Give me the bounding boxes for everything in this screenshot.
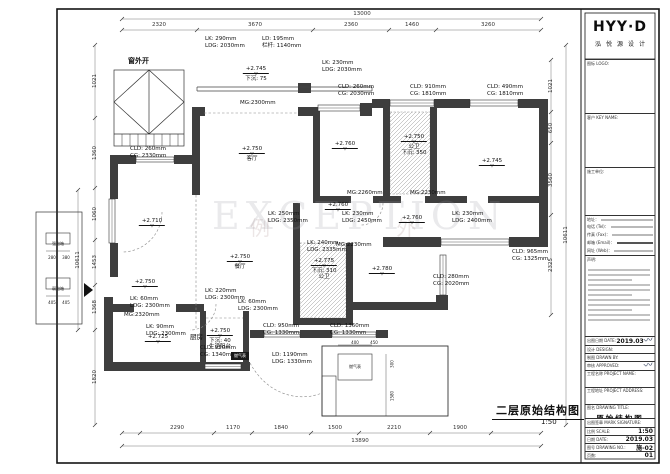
level-marker: +2.750▽	[132, 279, 158, 289]
dim-label: 3670	[248, 22, 262, 28]
tb-field-row: 设计 DESIGN:	[585, 345, 655, 353]
label: LDG: 2450mm	[342, 218, 382, 225]
label: CLD: 910mm	[410, 84, 446, 91]
level-marker: +2.750▽下沉: 40生活阳台	[207, 328, 233, 351]
dim-label: 1900	[453, 425, 467, 431]
leader-label: LK: 230mmLDG: 2400mm	[452, 211, 492, 225]
dim-top-total: 13000	[353, 11, 371, 17]
label: LDG: 2030mm	[322, 67, 362, 74]
tb-field-label: 制图 DRAWN BY:	[587, 355, 619, 361]
leader-label: LK: 60mmLDG: 2300mm	[238, 299, 278, 313]
leader-label: LK: 230mmLDG: 2450mm	[342, 211, 382, 225]
dim-label: 2210	[387, 425, 401, 431]
tb-field-label: 日期 DATE:	[587, 437, 608, 443]
label: LK: 290mm	[205, 36, 245, 43]
detail-dim-label: 300	[390, 360, 395, 368]
label: LK: 230mm	[342, 211, 382, 218]
tb-notes-line	[588, 309, 632, 311]
leader-label: CLD: 280mmCG: 2020mm	[433, 274, 469, 288]
tb-field-row: 审核 APPROVED:〰	[585, 361, 655, 370]
dim-label: 1170	[226, 425, 240, 431]
dim-label: 1021	[92, 74, 98, 88]
mg-height-label: MG:2320mm	[124, 312, 160, 318]
level-marker: +2.775▽下沉: 310公卫	[311, 258, 337, 281]
dim-label: 10611	[75, 251, 81, 269]
dim-label: 1500	[328, 425, 342, 431]
tb-contact-label: 地址：	[587, 217, 599, 223]
label: 栏杆: 1140mm	[262, 43, 301, 50]
dim-label: 2290	[170, 425, 184, 431]
detail-dim-label: 强电箱	[52, 241, 64, 247]
leader-label: CLD: 490mmCG: 1810mm	[487, 84, 523, 98]
label: LDG: 2300mm	[238, 306, 278, 313]
company-logo: HYY·D	[585, 19, 655, 35]
label: LDG: 2400mm	[452, 218, 492, 225]
label: LK: 60mm	[130, 296, 170, 303]
label: LK: 60mm	[238, 299, 278, 306]
detail-dim-label: 405	[62, 300, 70, 305]
tb-field-value: 2019.03	[616, 338, 643, 345]
tb-field-row: 比例 SCALE:1:50	[585, 427, 655, 435]
label: CLD: 950mm	[263, 323, 299, 330]
detail-dim-label: 450	[370, 340, 378, 345]
page: { "watermark": {"text": "EXCEPTION", "cn…	[0, 0, 670, 474]
leader-label: LD: 1190mmLDG: 1330mm	[272, 352, 312, 366]
tb-field-row: 出图日期 DATE:2019.03〰	[585, 336, 655, 345]
label: CG: 1330mm	[330, 330, 369, 337]
signature-stamp: 〰	[644, 362, 654, 369]
tb-contact-row: 传真 (Fax)：	[585, 231, 655, 239]
dim-label: 2320	[152, 22, 166, 28]
tb-field-value: 施-02	[636, 443, 653, 451]
level-marker: +2.745▽	[479, 158, 505, 168]
signature-stamp: 〰	[644, 337, 654, 344]
leader-label: CLD: 910mmCG: 1810mm	[410, 84, 446, 98]
label: CG: 1810mm	[410, 91, 446, 98]
tb-notes-line	[588, 274, 650, 276]
tb-notes-line	[588, 319, 650, 321]
tb-cell-label: 图标 LOGO:	[585, 60, 655, 68]
tb-notes-line	[588, 279, 632, 281]
tb-field-value: 1:50	[638, 428, 653, 435]
label: CLD: 490mm	[487, 84, 523, 91]
tb-field-label: 图号 DRAWING NO.:	[587, 445, 626, 451]
label: CLD: 965mm	[512, 249, 548, 256]
leader-label: CLD: 260mmCG: 2330mm	[130, 146, 166, 160]
tb-contact-row: 电话 (Tel)：	[585, 223, 655, 231]
label: CG: 1330mm	[263, 330, 299, 337]
leader-label: LK: 60mmLDG: 2300mm	[130, 296, 170, 310]
dim-label: 1360	[92, 146, 98, 160]
detail-dim-label: 405	[48, 300, 56, 305]
tb-contact-label: 电话 (Tel)：	[587, 224, 609, 230]
tb-notes-line	[588, 284, 650, 286]
tb-notes-header: 声明:	[585, 255, 655, 268]
tb-field-label: 比例 SCALE:	[587, 429, 610, 435]
label: LK: 250mm	[268, 211, 308, 218]
gas-meter-chip: 燃气表	[231, 352, 249, 360]
dim-label: 1840	[274, 425, 288, 431]
mg-height-label: MG:2300mm	[240, 100, 276, 106]
dim-label: 650	[548, 123, 554, 134]
dim-label: 1021	[548, 79, 554, 93]
dim-label: 1820	[92, 370, 98, 384]
tb-notes-line	[588, 269, 650, 271]
level-marker: +2.750▽餐厅	[227, 254, 253, 270]
leader-label: CLD: 1360mmCG: 1330mm	[330, 323, 369, 337]
level-marker: +2.760▽	[332, 141, 358, 151]
tb-contact-value-bar	[601, 219, 653, 221]
dim-label: 1453	[92, 255, 98, 269]
label: LD: 1190mm	[272, 352, 312, 359]
title-block: HYY·D 泓悦源设计 图标 LOGO:客户 KEY NAME:施工单位: 地址…	[585, 13, 655, 459]
dim-label: 3260	[481, 22, 495, 28]
detail-dim-label: 380	[62, 255, 70, 260]
tb-field-row: 图名 DRAWING TITLE:原始结构图	[585, 404, 655, 418]
room-label: 厨房	[190, 331, 203, 341]
level-marker: +2.745▽下沉: 75	[243, 66, 269, 82]
leader-label: LD: 195mm栏杆: 1140mm	[262, 36, 301, 50]
tb-field-value: 2019.03	[626, 436, 653, 443]
level-marker: +2.750▽公卫下沉: 350	[401, 134, 427, 157]
tb-contact-row: 地址：	[585, 215, 655, 223]
label: LDG: 2300mm	[130, 303, 170, 310]
tb-cell: 施工单位:	[585, 167, 655, 215]
label: CLD: 1360mm	[330, 323, 369, 330]
tb-field-row: 出图签章 MARK SIGNATURE:	[585, 418, 655, 427]
tb-contact-value-bar	[612, 234, 653, 236]
detail-dim-label: 400	[351, 340, 359, 345]
leader-label: LK: 230mmLDG: 2030mm	[322, 60, 362, 74]
level-marker: +2.760▽	[325, 202, 351, 212]
label: CG: 2020mm	[433, 281, 469, 288]
tb-field-row: 页数:01	[585, 451, 655, 459]
tb-contact-value-bar	[614, 250, 653, 252]
tb-cell: 图标 LOGO:	[585, 59, 655, 113]
label: CLD: 280mm	[433, 274, 469, 281]
tb-notes-line	[588, 289, 650, 291]
window-open-note: 窗外开	[128, 56, 149, 66]
tb-field-label: 图名 DRAWING TITLE:	[587, 405, 629, 411]
label: CG: 2030mm	[338, 91, 374, 98]
mg-height-label: MG:2230mm	[336, 242, 372, 248]
dim-label: 1060	[92, 207, 98, 221]
tb-notes-line	[588, 304, 650, 306]
tb-field-label: 出图签章 MARK SIGNATURE:	[587, 420, 641, 426]
tb-notes-line	[588, 299, 650, 301]
mg-height-label: MG:2230mm	[410, 190, 446, 196]
detail-dim-label: 280	[48, 255, 56, 260]
label: CG: 2330mm	[130, 153, 166, 160]
tb-notes-line	[588, 314, 650, 316]
leader-label: LK: 250mmLDG: 2350mm	[268, 211, 308, 225]
level-marker: +2.760▽	[399, 215, 425, 225]
dim-label: 10611	[563, 226, 569, 244]
level-marker: +2.725▽	[145, 334, 171, 344]
detail-dim-label: 1580	[390, 391, 395, 401]
leader-label: CLD: 950mmCG: 1330mm	[263, 323, 299, 337]
level-marker: +2.780▽	[369, 266, 395, 276]
tb-field-row: 日期 DATE:2019.03	[585, 435, 655, 443]
dim-label: 1368	[92, 300, 98, 314]
dim-label: 1460	[405, 22, 419, 28]
tb-field-value: 01	[645, 452, 653, 459]
company-logo-subtitle: 泓悦源设计	[585, 39, 655, 48]
label: LK: 90mm	[146, 324, 186, 331]
leader-label: CLD: 965mmCG: 1325mm	[512, 249, 548, 263]
tb-contact-row: 网址 (Web)：	[585, 247, 655, 255]
label: CLD: 260mm	[130, 146, 166, 153]
tb-field-label: 工程地址 PROJECT ADDRESS:	[587, 388, 643, 394]
label: LD: 195mm	[262, 36, 301, 43]
dim-label: 2325	[548, 258, 554, 272]
tb-contact-value-bar	[611, 226, 653, 228]
tb-field-row: 工程地址 PROJECT ADDRESS:	[585, 387, 655, 404]
label: CLD: 260mm	[338, 84, 374, 91]
detail-dim-label: 燃气表	[349, 364, 361, 370]
tb-cell: 客户 KEY NAME:	[585, 113, 655, 167]
level-marker: +2.710▽	[139, 218, 165, 228]
tb-notes-label: 声明:	[585, 256, 655, 264]
tb-notes-line	[588, 294, 632, 296]
tb-field-row: 图号 DRAWING NO.:施-02	[585, 443, 655, 451]
label: LDG: 1330mm	[272, 359, 312, 366]
tb-contact-label: 邮箱 (Email)：	[587, 240, 615, 246]
tb-contact-label: 网址 (Web)：	[587, 248, 612, 254]
tb-cell-label: 施工单位:	[585, 168, 655, 176]
detail-dim-label: 弱电箱	[52, 286, 64, 292]
label: LK: 230mm	[452, 211, 492, 218]
level-marker: +2.750▽客厅	[239, 146, 265, 162]
tb-contact-value-bar	[617, 242, 654, 244]
tb-field-row: 工程名称 PROJECT NAME:	[585, 370, 655, 387]
label: CG: 1810mm	[487, 91, 523, 98]
tb-field-label: 设计 DESIGN:	[587, 347, 613, 353]
dim-label: 2360	[344, 22, 358, 28]
tb-cell-label: 客户 KEY NAME:	[585, 114, 655, 122]
mg-height-label: MG:2260mm	[347, 190, 383, 196]
dim-bottom-total: 13890	[351, 438, 369, 444]
tb-field-label: 审核 APPROVED:	[587, 363, 619, 369]
leader-label: LK: 290mmLDG: 2030mm	[205, 36, 245, 50]
label: LDG: 2030mm	[205, 43, 245, 50]
plan-scale: 1:50	[541, 418, 557, 426]
label: LK: 230mm	[322, 60, 362, 67]
dim-label: 3560	[548, 173, 554, 187]
label: LDG: 2350mm	[268, 218, 308, 225]
label: LK: 220mm	[205, 288, 245, 295]
leader-label: CLD: 260mmCG: 2030mm	[338, 84, 374, 98]
plan-title: 二层原始结构图	[492, 402, 584, 420]
label: CG: 1325mm	[512, 256, 548, 263]
tb-field-label: 页数:	[587, 453, 596, 459]
tb-field-label: 出图日期 DATE:	[587, 338, 616, 344]
tb-contact-row: 邮箱 (Email)：	[585, 239, 655, 247]
tb-field-label: 工程名称 PROJECT NAME:	[587, 371, 636, 377]
tb-contact-label: 传真 (Fax)：	[587, 232, 610, 238]
tb-field-row: 制图 DRAWN BY:	[585, 353, 655, 361]
